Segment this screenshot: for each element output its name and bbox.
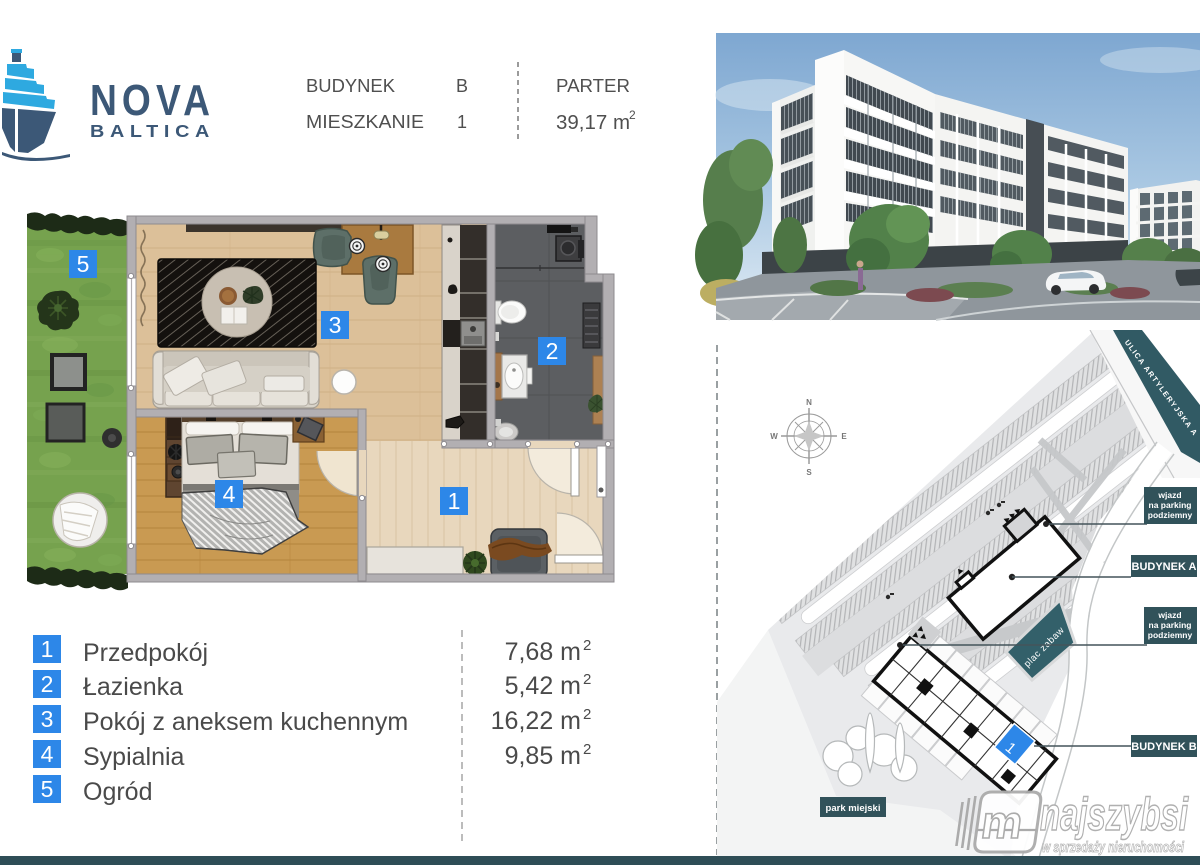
svg-text:podziemny: podziemny <box>1148 510 1193 520</box>
svg-text:3: 3 <box>329 312 342 338</box>
svg-text:E: E <box>841 432 847 441</box>
svg-text:1: 1 <box>457 112 467 132</box>
svg-text:najszybsi: najszybsi <box>1040 788 1189 840</box>
svg-text:Sypialnia: Sypialnia <box>83 743 185 771</box>
svg-text:2: 2 <box>546 338 559 364</box>
svg-text:BUDYNEK: BUDYNEK <box>306 76 395 96</box>
svg-text:Łazienka: Łazienka <box>83 673 183 701</box>
svg-text:na parking: na parking <box>1149 500 1192 510</box>
svg-text:9,85 m: 9,85 m <box>505 742 581 770</box>
svg-text:2: 2 <box>583 741 591 758</box>
svg-text:wjazd: wjazd <box>1157 610 1181 620</box>
svg-text:wjazd: wjazd <box>1157 490 1181 500</box>
svg-text:B: B <box>456 76 468 96</box>
svg-text:5,42 m: 5,42 m <box>505 672 581 700</box>
svg-text:m: m <box>978 796 1026 848</box>
svg-text:Przedpokój: Przedpokój <box>83 639 208 667</box>
svg-text:PARTER: PARTER <box>556 76 630 96</box>
svg-text:3: 3 <box>41 706 54 732</box>
svg-text:NOVA: NOVA <box>90 76 215 125</box>
svg-text:4: 4 <box>41 741 54 767</box>
svg-text:2: 2 <box>629 108 636 122</box>
svg-text:7,68 m: 7,68 m <box>505 638 581 666</box>
svg-text:2: 2 <box>41 671 54 697</box>
svg-text:5: 5 <box>41 776 54 802</box>
svg-text:1: 1 <box>41 636 54 662</box>
svg-text:N: N <box>806 398 812 407</box>
svg-text:S: S <box>806 468 812 477</box>
svg-text:podziemny: podziemny <box>1148 630 1193 640</box>
svg-text:BALTICA: BALTICA <box>90 121 215 141</box>
svg-text:Pokój z aneksem kuchennym: Pokój z aneksem kuchennym <box>83 708 408 736</box>
svg-text:BUDYNEK A: BUDYNEK A <box>1132 561 1197 573</box>
svg-text:1: 1 <box>448 488 461 514</box>
svg-text:39,17 m: 39,17 m <box>556 112 630 134</box>
svg-text:BUDYNEK B: BUDYNEK B <box>1131 741 1196 753</box>
svg-text:na parking: na parking <box>1149 620 1192 630</box>
svg-text:MIESZKANIE: MIESZKANIE <box>306 112 424 132</box>
svg-text:w sprzedaży nieruchomości: w sprzedaży nieruchomości <box>1042 839 1185 856</box>
svg-text:park miejski: park miejski <box>826 803 881 814</box>
svg-text:Ogród: Ogród <box>83 778 152 806</box>
svg-text:2: 2 <box>583 637 591 654</box>
svg-text:4: 4 <box>223 481 236 507</box>
svg-text:16,22 m: 16,22 m <box>491 707 581 735</box>
svg-text:2: 2 <box>583 671 591 688</box>
svg-text:2: 2 <box>583 706 591 723</box>
svg-text:5: 5 <box>77 251 90 277</box>
svg-text:W: W <box>770 432 778 441</box>
